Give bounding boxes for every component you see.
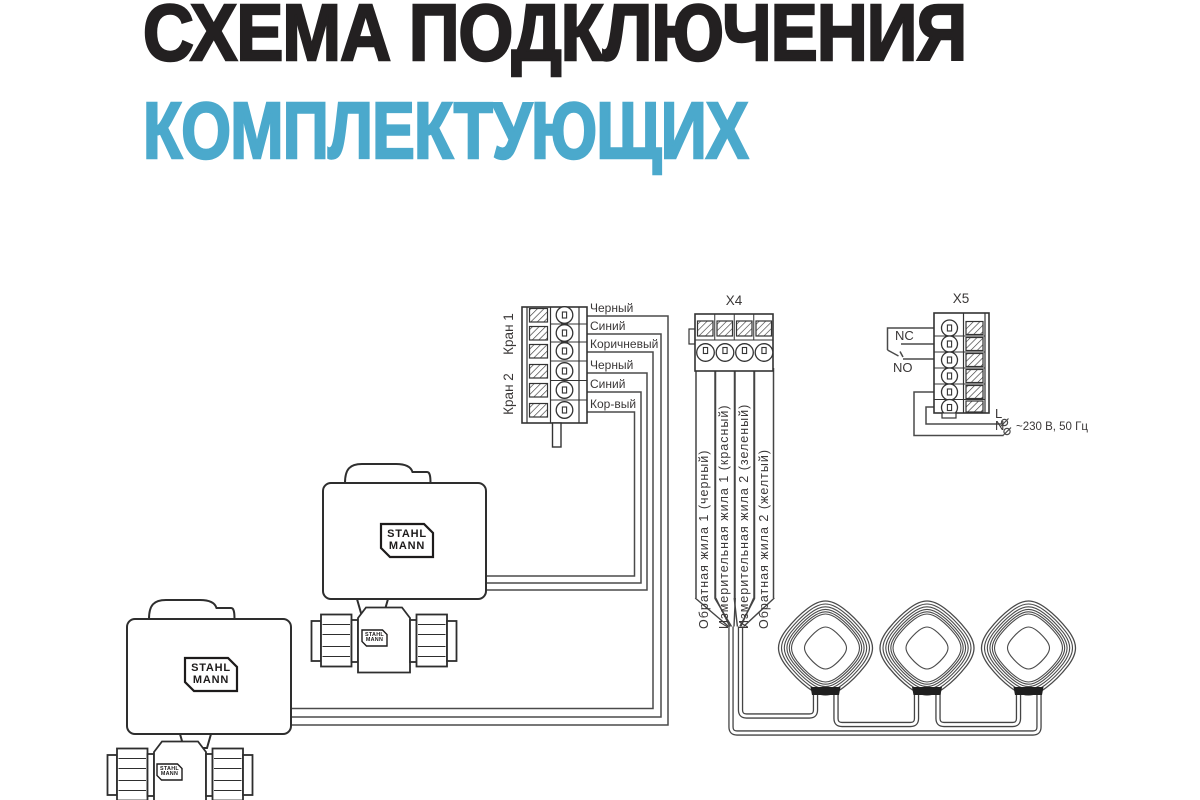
valve-group-2-label: Кран 2 <box>502 364 516 424</box>
brand-line2: MANN <box>362 638 387 644</box>
brand-line2: MANN <box>185 675 237 687</box>
valve-actuator-1 <box>108 600 292 800</box>
wire-label-4: Черный <box>590 359 633 372</box>
valve-group-1-label: Кран 1 <box>502 304 516 364</box>
leak-sensor-3 <box>982 601 1076 695</box>
brand-logo-actuator-1: STAHL MANN <box>185 658 237 691</box>
x4-wire-label-2: Измерительная жила 1 (красный) <box>718 387 731 629</box>
page-title-line2: КОМПЛЕКТУЮЩИХ <box>143 92 748 170</box>
brand-line1: STAHL <box>185 663 237 675</box>
leak-sensor-1 <box>779 601 873 695</box>
brand-line2: MANN <box>381 541 433 553</box>
wire-label-6: Кор-вый <box>590 398 636 411</box>
page: СХЕМА ПОДКЛЮЧЕНИЯ КОМПЛЕКТУЮЩИХ Кран 1 К… <box>0 0 1200 800</box>
wire-label-2: Синий <box>590 320 625 333</box>
x5-title: X5 <box>949 292 973 306</box>
relay-no-label: NO <box>893 361 913 375</box>
valve-terminal-block <box>522 307 587 447</box>
leak-sensors <box>779 601 1076 695</box>
wire-label-5: Синий <box>590 378 625 391</box>
brand-line1: STAHL <box>381 529 433 541</box>
x4-wire-label-3: Измерительная жила 2 (зеленый) <box>738 387 751 629</box>
brand-logo-actuator-2: STAHL MANN <box>381 524 433 557</box>
wire-label-3: Коричневый <box>590 338 658 351</box>
brand-logo-valve-1: STAHL MANN <box>157 764 182 780</box>
brand-line2: MANN <box>157 772 182 778</box>
valve-actuator-2 <box>312 464 487 673</box>
leak-sensor-2 <box>880 601 974 695</box>
relay-nc-label: NC <box>895 329 914 343</box>
x4-wire-label-1: Обратная жила 1 (черный) <box>698 387 711 629</box>
power-n-label: N <box>995 419 1004 433</box>
terminal-block-x4 <box>689 314 773 371</box>
page-title-line1: СХЕМА ПОДКЛЮЧЕНИЯ <box>143 0 966 72</box>
wire-label-1: Черный <box>590 302 633 315</box>
brand-logo-valve-2: STAHL MANN <box>362 630 387 646</box>
x4-wire-label-4: Обратная жила 2 (желтый) <box>758 387 771 629</box>
x4-title: X4 <box>722 294 746 308</box>
power-rating-label: ~230 В, 50 Гц <box>1016 421 1088 433</box>
